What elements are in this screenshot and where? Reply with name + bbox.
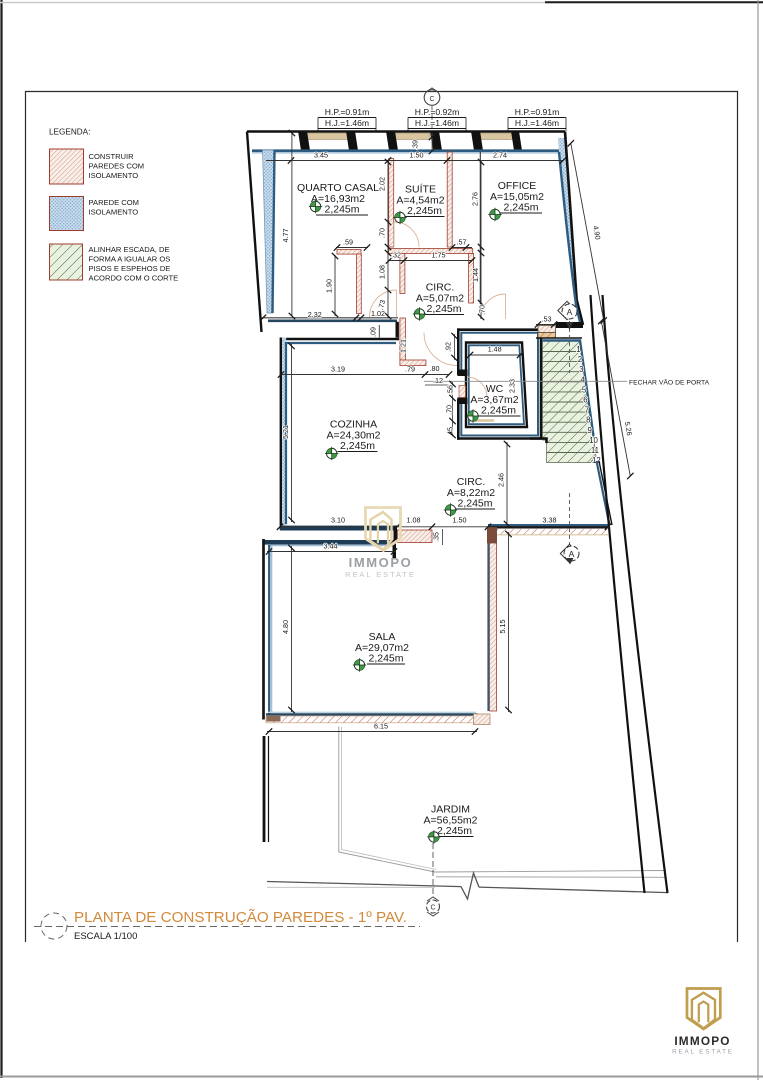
svg-text:2.32: 2.32 [308, 310, 322, 319]
svg-text:H.P.=0.91m: H.P.=0.91m [515, 107, 560, 117]
svg-text:REAL ESTATE: REAL ESTATE [345, 570, 416, 579]
svg-text:1.48: 1.48 [488, 345, 502, 354]
svg-text:2.76: 2.76 [471, 192, 480, 206]
svg-text:4.80: 4.80 [281, 620, 290, 634]
svg-text:2,245m: 2,245m [324, 204, 359, 216]
svg-text:7: 7 [585, 406, 589, 415]
svg-text:ACORDO COM O CORTE: ACORDO COM O CORTE [89, 274, 179, 283]
svg-text:PAREDE COM: PAREDE COM [89, 198, 140, 207]
svg-text:ALINHAR ESCADA, DE: ALINHAR ESCADA, DE [89, 245, 170, 254]
svg-text:2.33: 2.33 [508, 379, 517, 393]
svg-text:9: 9 [587, 426, 591, 435]
svg-text:.12: .12 [433, 376, 443, 385]
svg-text:H.J.=1.46m: H.J.=1.46m [515, 118, 559, 128]
svg-text:.92: .92 [444, 342, 453, 352]
svg-text:6.15: 6.15 [374, 722, 388, 731]
svg-text:IMMOPO: IMMOPO [349, 555, 413, 570]
svg-text:C: C [429, 96, 434, 103]
svg-text:2: 2 [578, 355, 582, 364]
svg-text:LEGENDA:: LEGENDA: [49, 128, 90, 137]
svg-text:1.44: 1.44 [471, 268, 480, 282]
svg-text:PAREDES COM: PAREDES COM [89, 162, 145, 171]
svg-text:.70: .70 [378, 228, 387, 238]
svg-text:6: 6 [583, 396, 587, 405]
svg-text:ESCALA 1/100: ESCALA 1/100 [74, 931, 137, 942]
svg-text:2,245m: 2,245m [481, 405, 516, 417]
svg-text:1.21: 1.21 [399, 339, 408, 353]
svg-text:1.02: 1.02 [371, 309, 385, 318]
svg-text:IMMOPO: IMMOPO [674, 1034, 730, 1048]
svg-text:2,245m: 2,245m [437, 825, 472, 837]
svg-text:1.08: 1.08 [378, 265, 387, 279]
svg-text:FORMA A IGUALAR OS: FORMA A IGUALAR OS [89, 255, 171, 264]
svg-text:.57: .57 [457, 238, 467, 247]
svg-text:3.38: 3.38 [543, 516, 557, 525]
svg-text:5.15: 5.15 [498, 620, 507, 634]
svg-text:2.46: 2.46 [497, 473, 506, 487]
svg-text:A: A [567, 307, 573, 317]
svg-text:5.21: 5.21 [281, 425, 290, 439]
svg-text:.70: .70 [478, 305, 487, 315]
svg-text:2.74: 2.74 [493, 151, 507, 160]
svg-text:H.J.=1.46m: H.J.=1.46m [325, 118, 369, 128]
svg-text:1.08: 1.08 [407, 516, 421, 525]
svg-text:4.77: 4.77 [281, 229, 290, 243]
svg-text:.35: .35 [434, 532, 441, 542]
svg-text:1.50: 1.50 [410, 151, 424, 160]
svg-text:A: A [569, 549, 575, 559]
svg-text:H.J.=1.46m: H.J.=1.46m [415, 118, 459, 128]
svg-text:.56: .56 [446, 385, 455, 395]
svg-text:1.90: 1.90 [325, 279, 334, 293]
svg-text:.32: .32 [391, 251, 401, 260]
svg-text:2,245m: 2,245m [426, 303, 461, 315]
svg-text:ISOLAMENTO: ISOLAMENTO [89, 208, 139, 217]
svg-text:1.75: 1.75 [432, 251, 446, 260]
svg-text:C: C [430, 905, 435, 912]
svg-text:FECHAR VÃO DE PORTA: FECHAR VÃO DE PORTA [629, 378, 710, 387]
svg-text:3.19: 3.19 [331, 365, 345, 374]
svg-text:H.P.=0.92m: H.P.=0.92m [415, 107, 460, 117]
svg-text:.09: .09 [369, 327, 378, 337]
svg-text:10: 10 [589, 436, 598, 445]
svg-text:2,245m: 2,245m [368, 653, 403, 665]
svg-text:.79: .79 [405, 365, 415, 374]
svg-text:.80: .80 [430, 364, 440, 373]
svg-text:ISOLAMENTO: ISOLAMENTO [89, 171, 139, 180]
svg-text:3.44: 3.44 [324, 542, 338, 551]
svg-text:.53: .53 [542, 315, 552, 324]
svg-text:11: 11 [591, 446, 599, 455]
svg-text:2,245m: 2,245m [503, 202, 538, 214]
svg-text:PISOS E ESPEHOS DE: PISOS E ESPEHOS DE [89, 264, 171, 273]
svg-text:2,245m: 2,245m [407, 205, 442, 217]
svg-text:REAL ESTATE: REAL ESTATE [672, 1049, 734, 1056]
svg-text:.59: .59 [343, 238, 353, 247]
svg-text:2,245m: 2,245m [340, 440, 375, 452]
svg-text:H.P.=0.91m: H.P.=0.91m [325, 107, 370, 117]
svg-text:8: 8 [586, 416, 590, 425]
svg-text:3.45: 3.45 [314, 151, 328, 160]
svg-text:3: 3 [579, 365, 583, 374]
svg-text:.70: .70 [445, 405, 454, 415]
svg-text:2.02: 2.02 [378, 177, 387, 191]
svg-text:1: 1 [576, 345, 580, 354]
svg-text:1.50: 1.50 [453, 516, 467, 525]
svg-text:2,245m: 2,245m [457, 498, 492, 510]
svg-text:.39: .39 [411, 140, 420, 150]
svg-text:4: 4 [581, 375, 586, 384]
svg-text:5: 5 [582, 385, 587, 394]
svg-text:CONSTRUIR: CONSTRUIR [89, 152, 135, 161]
svg-text:PLANTA DE CONSTRUÇÃO PAREDES -: PLANTA DE CONSTRUÇÃO PAREDES - 1º PAV. [74, 909, 407, 926]
svg-text:3.10: 3.10 [331, 516, 345, 525]
